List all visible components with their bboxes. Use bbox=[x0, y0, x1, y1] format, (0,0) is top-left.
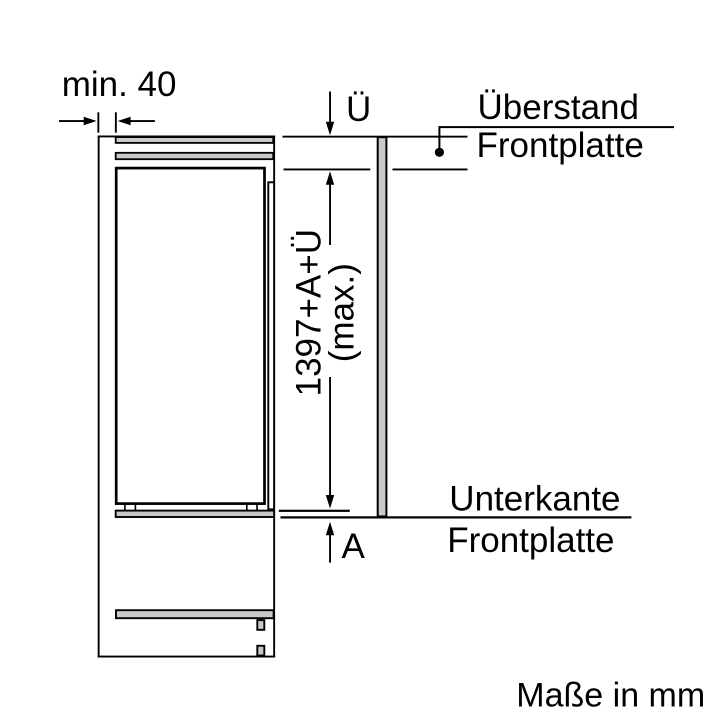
svg-text:min. 40: min. 40 bbox=[62, 65, 177, 104]
svg-text:(max.): (max.) bbox=[323, 263, 362, 362]
svg-text:Ü: Ü bbox=[346, 90, 371, 129]
svg-text:Frontplatte: Frontplatte bbox=[477, 126, 644, 165]
svg-text:Frontplatte: Frontplatte bbox=[447, 521, 614, 560]
svg-text:Unterkante: Unterkante bbox=[449, 480, 620, 519]
svg-text:Überstand: Überstand bbox=[478, 88, 639, 127]
svg-text:Maße in mm: Maße in mm bbox=[516, 677, 705, 715]
svg-text:A: A bbox=[342, 527, 366, 566]
